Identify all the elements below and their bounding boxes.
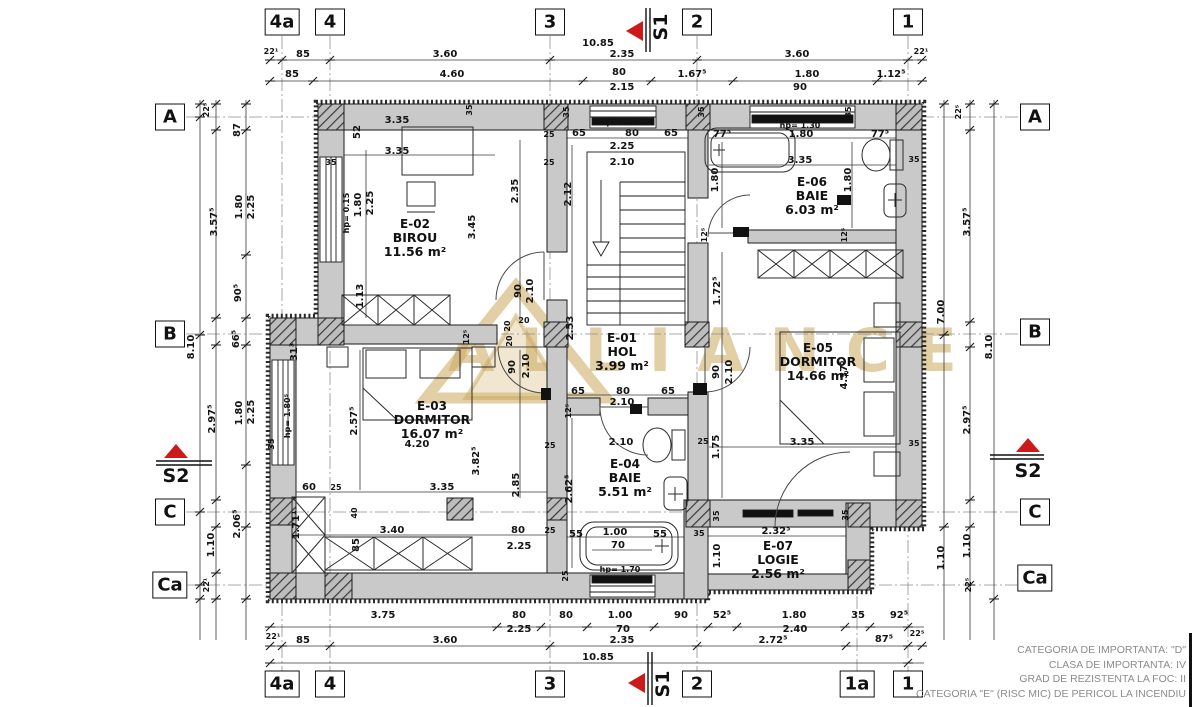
regulation-notes: CATEGORIA DE IMPORTANTA: "D"CLASA DE IMP…: [916, 643, 1186, 701]
dimension-label: 35: [712, 510, 722, 521]
note-line: CLASA DE IMPORTANTA: IV: [916, 658, 1186, 673]
dimension-label: 20: [503, 320, 513, 331]
dimension-label: 85: [285, 70, 299, 80]
dimension-label: 35: [693, 529, 704, 539]
dimension-label: 1.00: [608, 611, 633, 621]
grid-bubble-bottom-4a: 4a: [265, 671, 300, 698]
dimension-label: 12⁵: [462, 330, 472, 345]
dimension-label: 55: [653, 530, 667, 540]
grid-bubble-top-2: 2: [682, 9, 712, 36]
dimension-label: 2.15: [610, 83, 635, 93]
dimension-label: 12⁵: [700, 228, 710, 243]
dimension-label: 2.10: [526, 279, 536, 304]
dimension-label: 92⁵: [890, 611, 908, 621]
dimension-label: 2.35: [610, 636, 635, 646]
dimension-label: 35: [908, 155, 919, 165]
dimension-label: 1.10: [207, 533, 217, 558]
dimension-label: 1.67⁵: [677, 70, 706, 80]
dimension-label: 25: [561, 570, 571, 581]
dimension-label: 65: [571, 387, 585, 397]
dimension-label: 90: [508, 360, 518, 374]
dimension-label: 25: [543, 130, 554, 140]
dimension-label: 70: [611, 541, 625, 551]
dimension-label: 1.10: [937, 546, 947, 571]
room-name: DORMITOR: [394, 413, 471, 427]
dimension-label: 4.20: [405, 440, 430, 450]
dimension-label: hp= 1.30: [780, 121, 821, 131]
room-id: E-03: [394, 399, 471, 413]
dimension-label: 22⁵: [202, 103, 212, 118]
dimension-label: 3.35: [788, 156, 813, 166]
dimension-label: 7.00: [937, 300, 947, 325]
dimension-label: 35: [267, 438, 277, 449]
dimension-label: 90: [514, 284, 524, 298]
dimension-label: 80: [612, 68, 626, 78]
room-name: BAIE: [598, 471, 652, 485]
dimension-label: 3.82⁵: [472, 446, 482, 475]
dimension-label: 2.25: [247, 400, 257, 425]
section-label-s1-bottom: S1: [652, 671, 674, 698]
dimension-label: 3.60: [433, 50, 458, 60]
dimension-label: 35: [908, 439, 919, 449]
dimension-label: 85: [296, 50, 310, 60]
grid-bubble-top-3: 3: [535, 9, 565, 36]
dimension-label: 35: [465, 104, 475, 115]
grid-bubble-left-Ca: Ca: [152, 572, 187, 599]
room-id: E-07: [751, 539, 805, 553]
dimension-label: 22¹: [914, 47, 929, 57]
dimension-label: 2.10: [610, 158, 635, 168]
dimension-label: 1.00: [603, 528, 628, 538]
room-area: 16.07 m²: [394, 427, 471, 441]
grid-bubble-bottom-2: 2: [682, 671, 712, 698]
grid-bubble-top-4: 4: [315, 9, 345, 36]
grid-bubble-left-B: B: [155, 321, 185, 348]
dimension-label: 77⁵: [871, 130, 889, 140]
dimension-label: hp= 1.70: [600, 565, 641, 575]
dimension-label: 1.80: [789, 130, 814, 140]
grid-bubble-right-A: A: [1020, 104, 1050, 131]
dimension-label: 70: [616, 625, 630, 635]
dimension-label: 35: [325, 158, 336, 168]
room-area: 14.66 m²: [780, 369, 857, 383]
dimension-label: 2.32⁵: [761, 527, 790, 537]
dimension-label: 22⁵: [910, 629, 925, 639]
room-label-e-03: E-03DORMITOR16.07 m²: [394, 399, 471, 441]
dimension-label: 3.35: [790, 438, 815, 448]
dimension-label: 25: [697, 437, 708, 447]
dimension-label: 1.80: [844, 168, 854, 193]
dimension-label: 90: [712, 365, 722, 379]
room-name: BIROU: [384, 231, 446, 245]
dimension-label: 22¹: [202, 578, 212, 593]
dimension-label: 85: [352, 538, 362, 552]
dimension-label: 25: [544, 526, 555, 536]
grid-bubble-left-C: C: [155, 499, 185, 526]
dimension-label: 85: [296, 636, 310, 646]
dimension-label: 35: [697, 106, 707, 117]
dimension-label: 90⁵: [234, 284, 244, 302]
grid-bubble-right-B: B: [1020, 319, 1050, 346]
labels-overlay: 10.8522¹853.602.353.6022¹854.60801.67⁵1.…: [0, 0, 1200, 707]
dimension-label: 1.10: [963, 534, 973, 559]
dimension-label: 1.80: [782, 611, 807, 621]
dimension-label: 22¹: [264, 47, 279, 57]
dimension-label: 2.12: [564, 182, 574, 207]
dimension-label: 2.10: [609, 438, 634, 448]
room-label-e-05: E-05DORMITOR14.66 m²: [780, 341, 857, 383]
dimension-label: hp= 0.15: [342, 193, 352, 234]
section-label-s2-right: S2: [1015, 460, 1042, 482]
note-line: GRAD DE REZISTENTA LA FOC: II: [916, 672, 1186, 687]
grid-bubble-bottom-3: 3: [535, 671, 565, 698]
dimension-label: 65: [661, 387, 675, 397]
dimension-label: 2.10: [522, 354, 532, 379]
dimension-label: 12⁵: [840, 228, 850, 243]
room-id: E-01: [595, 331, 649, 345]
dimension-label: 1.80: [235, 401, 245, 426]
dimension-label: 1.75: [712, 435, 722, 460]
dimension-label: 25: [543, 158, 554, 168]
dimension-label: 2.57⁵: [350, 406, 360, 435]
dimension-label: 2.72⁵: [758, 636, 787, 646]
dimension-label: 2.06⁵: [233, 509, 243, 538]
dimension-label: 1.80: [795, 70, 820, 80]
room-id: E-05: [780, 341, 857, 355]
dimension-label: 2.25: [507, 625, 532, 635]
grid-bubble-left-A: A: [155, 104, 185, 131]
dimension-label: 2.35: [610, 50, 635, 60]
dimension-label: 1.71¹: [292, 510, 302, 539]
room-id: E-06: [785, 175, 839, 189]
dimension-label: 65: [572, 129, 586, 139]
room-name: DORMITOR: [780, 355, 857, 369]
dimension-label: 3.57⁵: [210, 207, 220, 236]
dimension-label: 80: [559, 611, 573, 621]
section-label-s2-left: S2: [163, 465, 190, 487]
grid-bubble-right-C: C: [1020, 499, 1050, 526]
dimension-label: 35: [841, 509, 851, 520]
titleblock-border: [1189, 633, 1192, 707]
dimension-label: 3.45: [468, 215, 478, 240]
dimension-label: 2.25: [366, 191, 376, 216]
room-name: LOGIE: [751, 553, 805, 567]
dimension-label: 1.80: [711, 168, 721, 193]
dimension-label: 20: [505, 335, 515, 346]
room-label-e-01: E-01HOL3.99 m²: [595, 331, 649, 373]
dimension-label: hp= 0.15: [601, 118, 642, 128]
section-label-s1-top: S1: [650, 14, 672, 41]
dimension-label: 60: [302, 483, 316, 493]
dimension-label: 22¹: [266, 632, 281, 642]
dimension-label: 87⁵: [875, 635, 893, 645]
dimension-label: 22⁵: [954, 105, 964, 120]
dimension-label: hp= 1.80⁵: [283, 394, 293, 438]
dimension-label: 77⁵: [713, 130, 731, 140]
dimension-label: 1.80: [235, 195, 245, 220]
dimension-label: 2.97⁵: [208, 404, 218, 433]
dimension-label: 3.35: [385, 116, 410, 126]
dimension-label: 1.12⁵: [876, 70, 905, 80]
dimension-label: 80: [616, 387, 630, 397]
dimension-label: 35: [844, 106, 854, 117]
dimension-label: 80: [512, 611, 526, 621]
dimension-label: 1.72⁵: [713, 276, 723, 305]
dimension-label: 1.80: [354, 193, 364, 218]
dimension-label: 10.85: [582, 653, 614, 663]
room-area: 2.56 m²: [751, 567, 805, 581]
dimension-label: 2.25: [247, 195, 257, 220]
room-name: HOL: [595, 345, 649, 359]
dimension-label: 3.40: [380, 526, 405, 536]
dimension-label: 55: [569, 530, 583, 540]
room-name: BAIE: [785, 189, 839, 203]
room-label-e-06: E-06BAIE6.03 m²: [785, 175, 839, 217]
dimension-label: 20: [518, 316, 529, 326]
grid-bubble-bottom-1a: 1a: [840, 671, 875, 698]
room-area: 5.51 m²: [598, 485, 652, 499]
dimension-label: 2.53: [566, 316, 576, 341]
dimension-label: 2.10: [725, 360, 735, 385]
dimension-label: 52: [353, 125, 363, 139]
dimension-label: 2.85: [512, 473, 522, 498]
dimension-label: 3.35: [430, 483, 455, 493]
dimension-label: 25: [330, 483, 341, 493]
dimension-label: 2.40: [783, 625, 808, 635]
dimension-label: 2.25: [610, 142, 635, 152]
dimension-label: 22⁵: [964, 578, 974, 593]
floor-plan-sheet: ALLIANCE: [0, 0, 1200, 707]
grid-bubble-right-Ca: Ca: [1017, 565, 1052, 592]
grid-bubble-top-4a: 4a: [265, 9, 300, 36]
room-area: 3.99 m²: [595, 359, 649, 373]
dimension-label: 31³: [290, 343, 300, 361]
dimension-label: 25: [544, 441, 555, 451]
room-label-e-07: E-07LOGIE2.56 m²: [751, 539, 805, 581]
note-line: CATEGORIA "E" (RISC MIC) DE PERICOL LA I…: [916, 687, 1186, 702]
dimension-label: 80: [625, 129, 639, 139]
dimension-label: 2.62⁵: [565, 474, 575, 503]
dimension-label: 1.10: [713, 544, 723, 569]
dimension-label: 8.10: [187, 335, 197, 360]
dimension-label: 3.60: [433, 636, 458, 646]
room-area: 11.56 m²: [384, 245, 446, 259]
dimension-label: 2.10: [610, 398, 635, 408]
room-label-e-04: E-04BAIE5.51 m²: [598, 457, 652, 499]
dimension-label: 12⁵: [564, 404, 574, 419]
note-line: CATEGORIA DE IMPORTANTA: "D": [916, 643, 1186, 658]
grid-bubble-bottom-4: 4: [315, 671, 345, 698]
dimension-label: 3.35: [385, 147, 410, 157]
dimension-label: 1.13: [356, 284, 366, 309]
dimension-label: 3.57⁵: [963, 207, 973, 236]
dimension-label: 87: [233, 123, 243, 137]
dimension-label: 66⁵: [232, 330, 242, 348]
dimension-label: 4.60: [440, 70, 465, 80]
dimension-label: 2.35: [511, 179, 521, 204]
dimension-label: 8.10: [985, 335, 995, 360]
dimension-label: 65: [664, 129, 678, 139]
dimension-label: 90: [793, 83, 807, 93]
room-label-e-02: E-02BIROU11.56 m²: [384, 217, 446, 259]
room-id: E-04: [598, 457, 652, 471]
dimension-label: 35: [562, 106, 572, 117]
dimension-label: 3.75: [371, 611, 396, 621]
dimension-label: 2.25: [507, 542, 532, 552]
grid-bubble-top-1: 1: [893, 9, 923, 36]
dimension-label: 10.85: [582, 39, 614, 49]
dimension-label: 2.97⁵: [963, 405, 973, 434]
dimension-label: 90: [674, 611, 688, 621]
room-area: 6.03 m²: [785, 203, 839, 217]
room-id: E-02: [384, 217, 446, 231]
dimension-label: 52⁵: [713, 611, 731, 621]
dimension-label: 35: [851, 611, 865, 621]
dimension-label: 3.60: [785, 50, 810, 60]
dimension-label: 80: [511, 526, 525, 536]
dimension-label: 40: [350, 507, 360, 518]
